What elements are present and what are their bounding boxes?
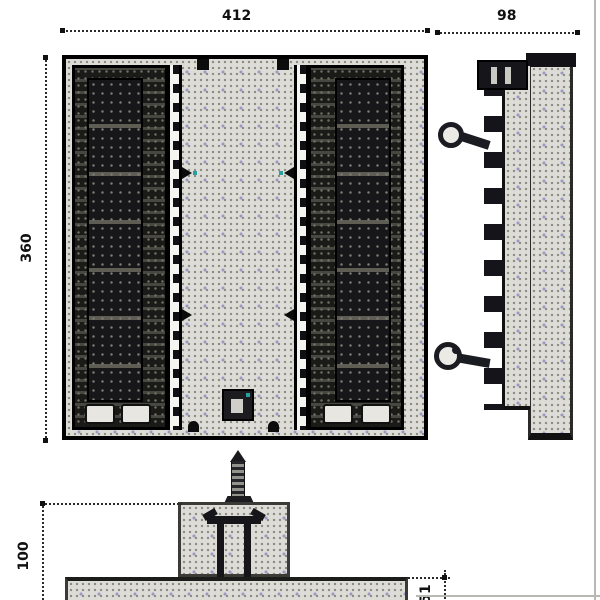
dim-depth-tick-left — [435, 30, 440, 35]
plan-left-module-endcap-2 — [121, 404, 151, 424]
dim-height-tick-bottom — [43, 438, 48, 443]
plan-left-led-band — [72, 65, 168, 430]
plan-tick-left-upper — [182, 167, 192, 179]
dim-depth-tick-right — [575, 30, 580, 35]
plan-right-led-band — [308, 65, 404, 430]
plan-left-gasket-strip — [168, 65, 182, 430]
plan-right-module-endcap-1 — [323, 404, 353, 424]
dim-width-tick-left — [60, 28, 65, 33]
plan-cable-gland-fleck — [246, 393, 250, 397]
plan-tick-left-lower — [182, 309, 192, 321]
dim-base-tick-top — [442, 575, 447, 580]
side-top-cap — [526, 53, 576, 67]
dim-height-tick-top — [43, 55, 48, 60]
plan-tick-right-upper — [284, 167, 294, 179]
plan-cable-gland-inner — [231, 399, 243, 413]
dim-bracket-tick-top — [40, 501, 45, 506]
plan-view-body — [62, 55, 428, 440]
side-eyebolt-upper-ring — [438, 122, 464, 148]
plan-left-gasket-dashes — [173, 65, 179, 430]
plan-left-module-endcap-1 — [85, 404, 115, 424]
side-rear-housing — [528, 57, 573, 440]
front-mounting-boss — [178, 502, 290, 577]
side-heatsink-body — [502, 66, 530, 410]
front-screw-shaft — [231, 461, 245, 499]
front-bracket-top-bar — [207, 516, 261, 524]
side-terminal-slot-2 — [505, 67, 511, 84]
plan-tick-left-upper-fleck — [193, 171, 197, 175]
side-terminal-block — [477, 60, 528, 90]
page-frame-right — [594, 0, 596, 600]
plan-bottom-stud-right — [268, 421, 279, 432]
dim-depth-label: 98 — [497, 8, 516, 24]
plan-right-gasket-strip — [294, 65, 308, 430]
dim-bracket-line — [42, 503, 44, 600]
dim-bracket-label: 100 — [16, 536, 32, 576]
plan-top-tab-left — [197, 59, 209, 70]
front-bracket-left-leg — [217, 516, 224, 577]
dim-width-label: 412 — [222, 8, 251, 24]
dim-width-tick-right — [425, 28, 430, 33]
drawing-canvas: 412 360 — [0, 0, 600, 600]
dim-width-line — [62, 30, 428, 32]
plan-right-module-column — [335, 78, 391, 402]
front-bracket-right-leg — [244, 516, 251, 577]
plan-right-gasket-dashes — [300, 65, 306, 430]
dim-depth-line — [437, 32, 578, 34]
dim-bracket-extension-top — [42, 503, 182, 505]
plan-left-module-column — [87, 78, 143, 402]
side-terminal-slot-1 — [491, 67, 497, 84]
front-base-plate — [65, 577, 408, 600]
plan-tick-right-lower — [284, 309, 294, 321]
dim-height-line — [45, 57, 47, 441]
plan-cable-gland — [222, 389, 254, 421]
plan-top-tab-right — [277, 59, 289, 70]
plan-bottom-stud-left — [188, 421, 199, 432]
plan-right-module-endcap-2 — [361, 404, 391, 424]
side-eyebolt-lower-pin — [452, 346, 460, 354]
plan-tick-right-upper-fleck — [279, 171, 283, 175]
dim-base-label: 51 — [418, 580, 434, 600]
page-frame-bottom — [416, 595, 600, 597]
dim-height-label: 360 — [19, 231, 35, 265]
